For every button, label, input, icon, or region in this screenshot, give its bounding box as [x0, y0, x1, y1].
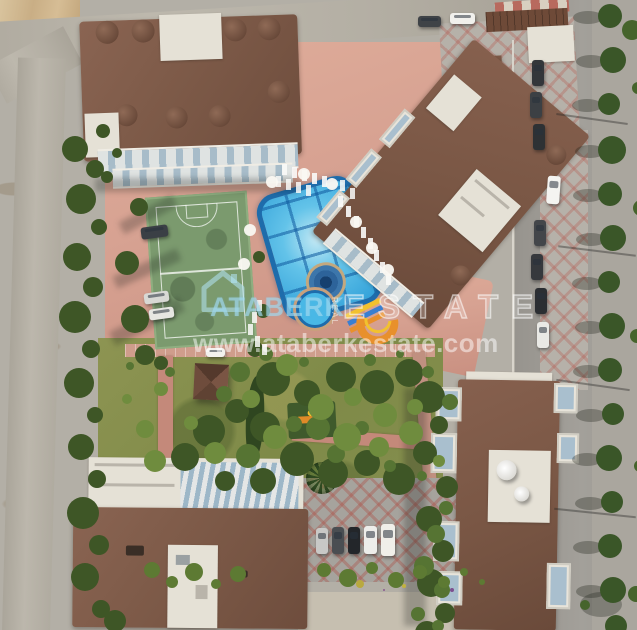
- roof-vent: [238, 570, 248, 577]
- parked-car: [534, 220, 546, 246]
- parked-car: [533, 124, 545, 150]
- building-top-left-flat-roof: [159, 13, 223, 61]
- building-bottom-right-shadow: [404, 388, 426, 626]
- parked-car: [535, 288, 547, 314]
- gazebo-roof: [193, 363, 229, 401]
- roof-dome: [446, 261, 474, 289]
- building-bottom-right-balcony: [435, 387, 462, 421]
- playground: [287, 401, 337, 439]
- building-bottom-left: [67, 449, 314, 630]
- parked-car: [532, 60, 544, 86]
- building-bottom-left-courtyard: [167, 545, 218, 628]
- roof-vent: [126, 545, 144, 555]
- court-key-top: [185, 203, 208, 219]
- building-bottom-right-balcony: [433, 521, 460, 561]
- parked-car: [450, 13, 475, 24]
- building-top-left-shadow: [95, 178, 300, 192]
- building-bottom-right-balcony: [436, 571, 463, 605]
- parked-car: [531, 254, 543, 280]
- building-bottom-right: [416, 371, 580, 630]
- courtyard-detail: [176, 555, 190, 565]
- parked-car: [418, 16, 441, 27]
- parked-car: [537, 322, 549, 348]
- parked-car: [316, 528, 328, 554]
- parked-car: [348, 527, 360, 554]
- driving-car-white: [546, 176, 561, 205]
- parked-car: [206, 348, 225, 357]
- parked-car: [364, 526, 377, 554]
- building-bottom-left-skylights: [180, 462, 298, 510]
- terrace-detail: [474, 179, 510, 210]
- parked-car: [530, 92, 542, 118]
- parked-van: [381, 524, 395, 556]
- building-top-right-balcony: [346, 148, 382, 188]
- building-bottom-right-balcony: [554, 383, 579, 413]
- play-equipment: [297, 415, 324, 423]
- building-top-right-terrace-small: [426, 74, 482, 131]
- aerial-photo-residential-complex: ATABERK REAL ESTATE www.ataberkestate.co…: [0, 0, 637, 630]
- building-top-right-roof-terrace: [438, 169, 521, 252]
- building-top-left: [67, 10, 313, 188]
- courtyard-detail: [195, 585, 207, 599]
- kids-pool: [296, 290, 334, 328]
- building-bottom-right-balcony: [546, 563, 571, 609]
- garden-path-vertical: [158, 356, 173, 461]
- building-top-right-balcony: [379, 109, 415, 149]
- parked-car: [332, 527, 344, 554]
- building-bottom-right-balcony: [430, 433, 457, 473]
- terrace-detail: [460, 196, 485, 218]
- building-bottom-right-balcony: [557, 433, 580, 463]
- roof-dome: [542, 141, 570, 169]
- right-street-median: [592, 0, 637, 630]
- building-top-right-pool-facade: [323, 228, 425, 318]
